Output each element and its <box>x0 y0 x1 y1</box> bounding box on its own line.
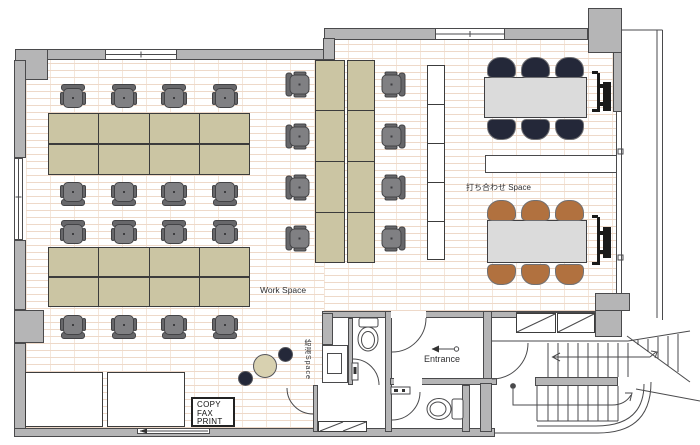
meeting-chair-navy <box>555 57 584 78</box>
tv-mount-upper <box>597 73 600 112</box>
office-chair <box>286 123 313 149</box>
wall-vent-mark <box>618 149 623 154</box>
toilet-room-lower <box>392 385 462 428</box>
office-chair <box>161 220 187 247</box>
label-meeting-space: 打ち合わせ Space <box>466 182 531 193</box>
window-top-left <box>105 49 177 60</box>
toilet2-door-opening <box>394 378 422 385</box>
chair-seat <box>215 224 235 244</box>
chair-seat <box>215 182 235 202</box>
meeting-chair-brown <box>555 264 584 285</box>
chair-seat <box>114 88 134 108</box>
office-chair <box>111 220 137 247</box>
meeting-chair-brown <box>521 264 550 285</box>
office-chair <box>60 179 86 206</box>
chair-seat <box>290 126 310 146</box>
meeting-table-upper <box>484 77 587 118</box>
toilet-room-upper <box>353 318 385 385</box>
office-chair <box>212 84 238 111</box>
chair-seat <box>382 228 402 248</box>
wall-corridor-right <box>480 383 492 432</box>
meeting-chair-navy <box>487 57 516 78</box>
shoe-cabinet-2 <box>557 313 595 333</box>
wall-step-connector <box>323 38 335 60</box>
chair-seat <box>164 224 184 244</box>
meeting-chair-navy <box>555 119 584 140</box>
copy-station: COPY FAX PRINT <box>191 397 235 427</box>
office-chair <box>286 174 313 200</box>
chair-seat <box>382 177 402 197</box>
stool <box>278 347 293 362</box>
office-chair <box>286 71 313 97</box>
round-table <box>253 354 277 378</box>
door-bottom-wall <box>137 428 210 434</box>
office-chair <box>161 312 187 339</box>
desk-divider <box>315 161 345 162</box>
office-chair <box>212 312 238 339</box>
copy-label-line: PRINT <box>197 418 233 427</box>
stair-top-edge-slant <box>628 331 690 341</box>
wall-left-upper <box>14 60 26 158</box>
office-chair <box>111 312 137 339</box>
wall-left-step <box>14 310 44 343</box>
desk-divider <box>347 161 375 162</box>
cabinet-divider <box>427 104 445 105</box>
window-left <box>14 158 23 240</box>
storage-table-2 <box>107 372 185 427</box>
tv-screen-lower <box>603 227 611 258</box>
wall-bottom <box>14 428 495 437</box>
chair-seat <box>164 315 184 335</box>
meeting-chair-brown <box>555 200 584 221</box>
office-chair <box>379 123 406 149</box>
chair-seat <box>63 315 83 335</box>
meeting-chair-navy <box>487 119 516 140</box>
chair-seat <box>63 88 83 108</box>
desk-divider <box>315 110 345 111</box>
meeting-table-lower <box>487 220 587 263</box>
meeting-chair-brown <box>521 200 550 221</box>
office-floor-plan: COPY FAX PRINT <box>0 0 700 445</box>
window-top-right <box>435 28 505 40</box>
office-chair <box>111 179 137 206</box>
chair-seat <box>215 88 235 108</box>
chair-seat <box>114 182 134 202</box>
cabinet-divider <box>427 182 445 183</box>
meeting-chair-brown <box>487 200 516 221</box>
chair-seat <box>382 74 402 94</box>
wall-left-mid <box>14 240 26 310</box>
label-kitchen: 給湯Space <box>302 339 312 389</box>
desk-divider <box>315 212 345 213</box>
office-chair <box>111 84 137 111</box>
storage-table-1 <box>25 372 103 427</box>
tv-mount-lower <box>597 217 600 265</box>
wall-toilet2-right <box>462 385 470 432</box>
desk-divider <box>347 110 375 111</box>
meeting-chair-brown <box>487 264 516 285</box>
entrance-hall <box>392 318 483 378</box>
chair-seat <box>63 224 83 244</box>
stool <box>238 371 253 386</box>
entrance-door-opening <box>391 311 426 318</box>
wall-vent-mark <box>618 255 623 260</box>
office-chair <box>161 179 187 206</box>
wall-block-se-b <box>595 310 622 337</box>
chair-seat <box>164 88 184 108</box>
label-entrance: Entrance <box>424 354 460 364</box>
office-chair <box>286 225 313 251</box>
chair-seat <box>164 182 184 202</box>
kitchen-low-cabinet <box>318 421 367 432</box>
cabinet-column <box>427 65 445 260</box>
desk-center-rail <box>48 276 250 278</box>
office-chair <box>379 71 406 97</box>
office-chair <box>60 312 86 339</box>
chair-seat <box>290 228 310 248</box>
office-chair <box>212 179 238 206</box>
chair-seat <box>114 315 134 335</box>
office-chair <box>60 84 86 111</box>
chair-seat <box>114 224 134 244</box>
desk-center-rail <box>48 143 250 145</box>
wall-column-ne-lower <box>613 52 622 112</box>
stair-handrail <box>535 377 618 386</box>
chair-seat <box>290 74 310 94</box>
low-shelf <box>485 155 617 173</box>
meeting-chair-navy <box>521 119 550 140</box>
office-chair <box>379 225 406 251</box>
wall-toilet-divider <box>385 311 392 432</box>
chair-seat <box>215 315 235 335</box>
cabinet-divider <box>427 221 445 222</box>
kitchen-sink <box>327 353 342 374</box>
label-work-space: Work Space <box>260 285 306 295</box>
tv-screen-upper <box>603 82 611 111</box>
wall-block-se-a <box>595 293 630 311</box>
chair-seat <box>63 182 83 202</box>
shoe-cabinet-1 <box>516 313 556 333</box>
chair-seat <box>382 126 402 146</box>
chair-seat <box>290 177 310 197</box>
desk-divider <box>347 212 375 213</box>
meeting-chair-navy <box>521 57 550 78</box>
wall-toilet1-left <box>348 318 353 385</box>
wall-column-ne <box>588 8 622 53</box>
wall-kitchen <box>322 313 333 345</box>
cabinet-divider <box>427 143 445 144</box>
wall-entrance-right <box>483 311 492 385</box>
office-chair <box>212 220 238 247</box>
office-chair <box>379 174 406 200</box>
office-chair <box>161 84 187 111</box>
office-chair <box>60 220 86 247</box>
